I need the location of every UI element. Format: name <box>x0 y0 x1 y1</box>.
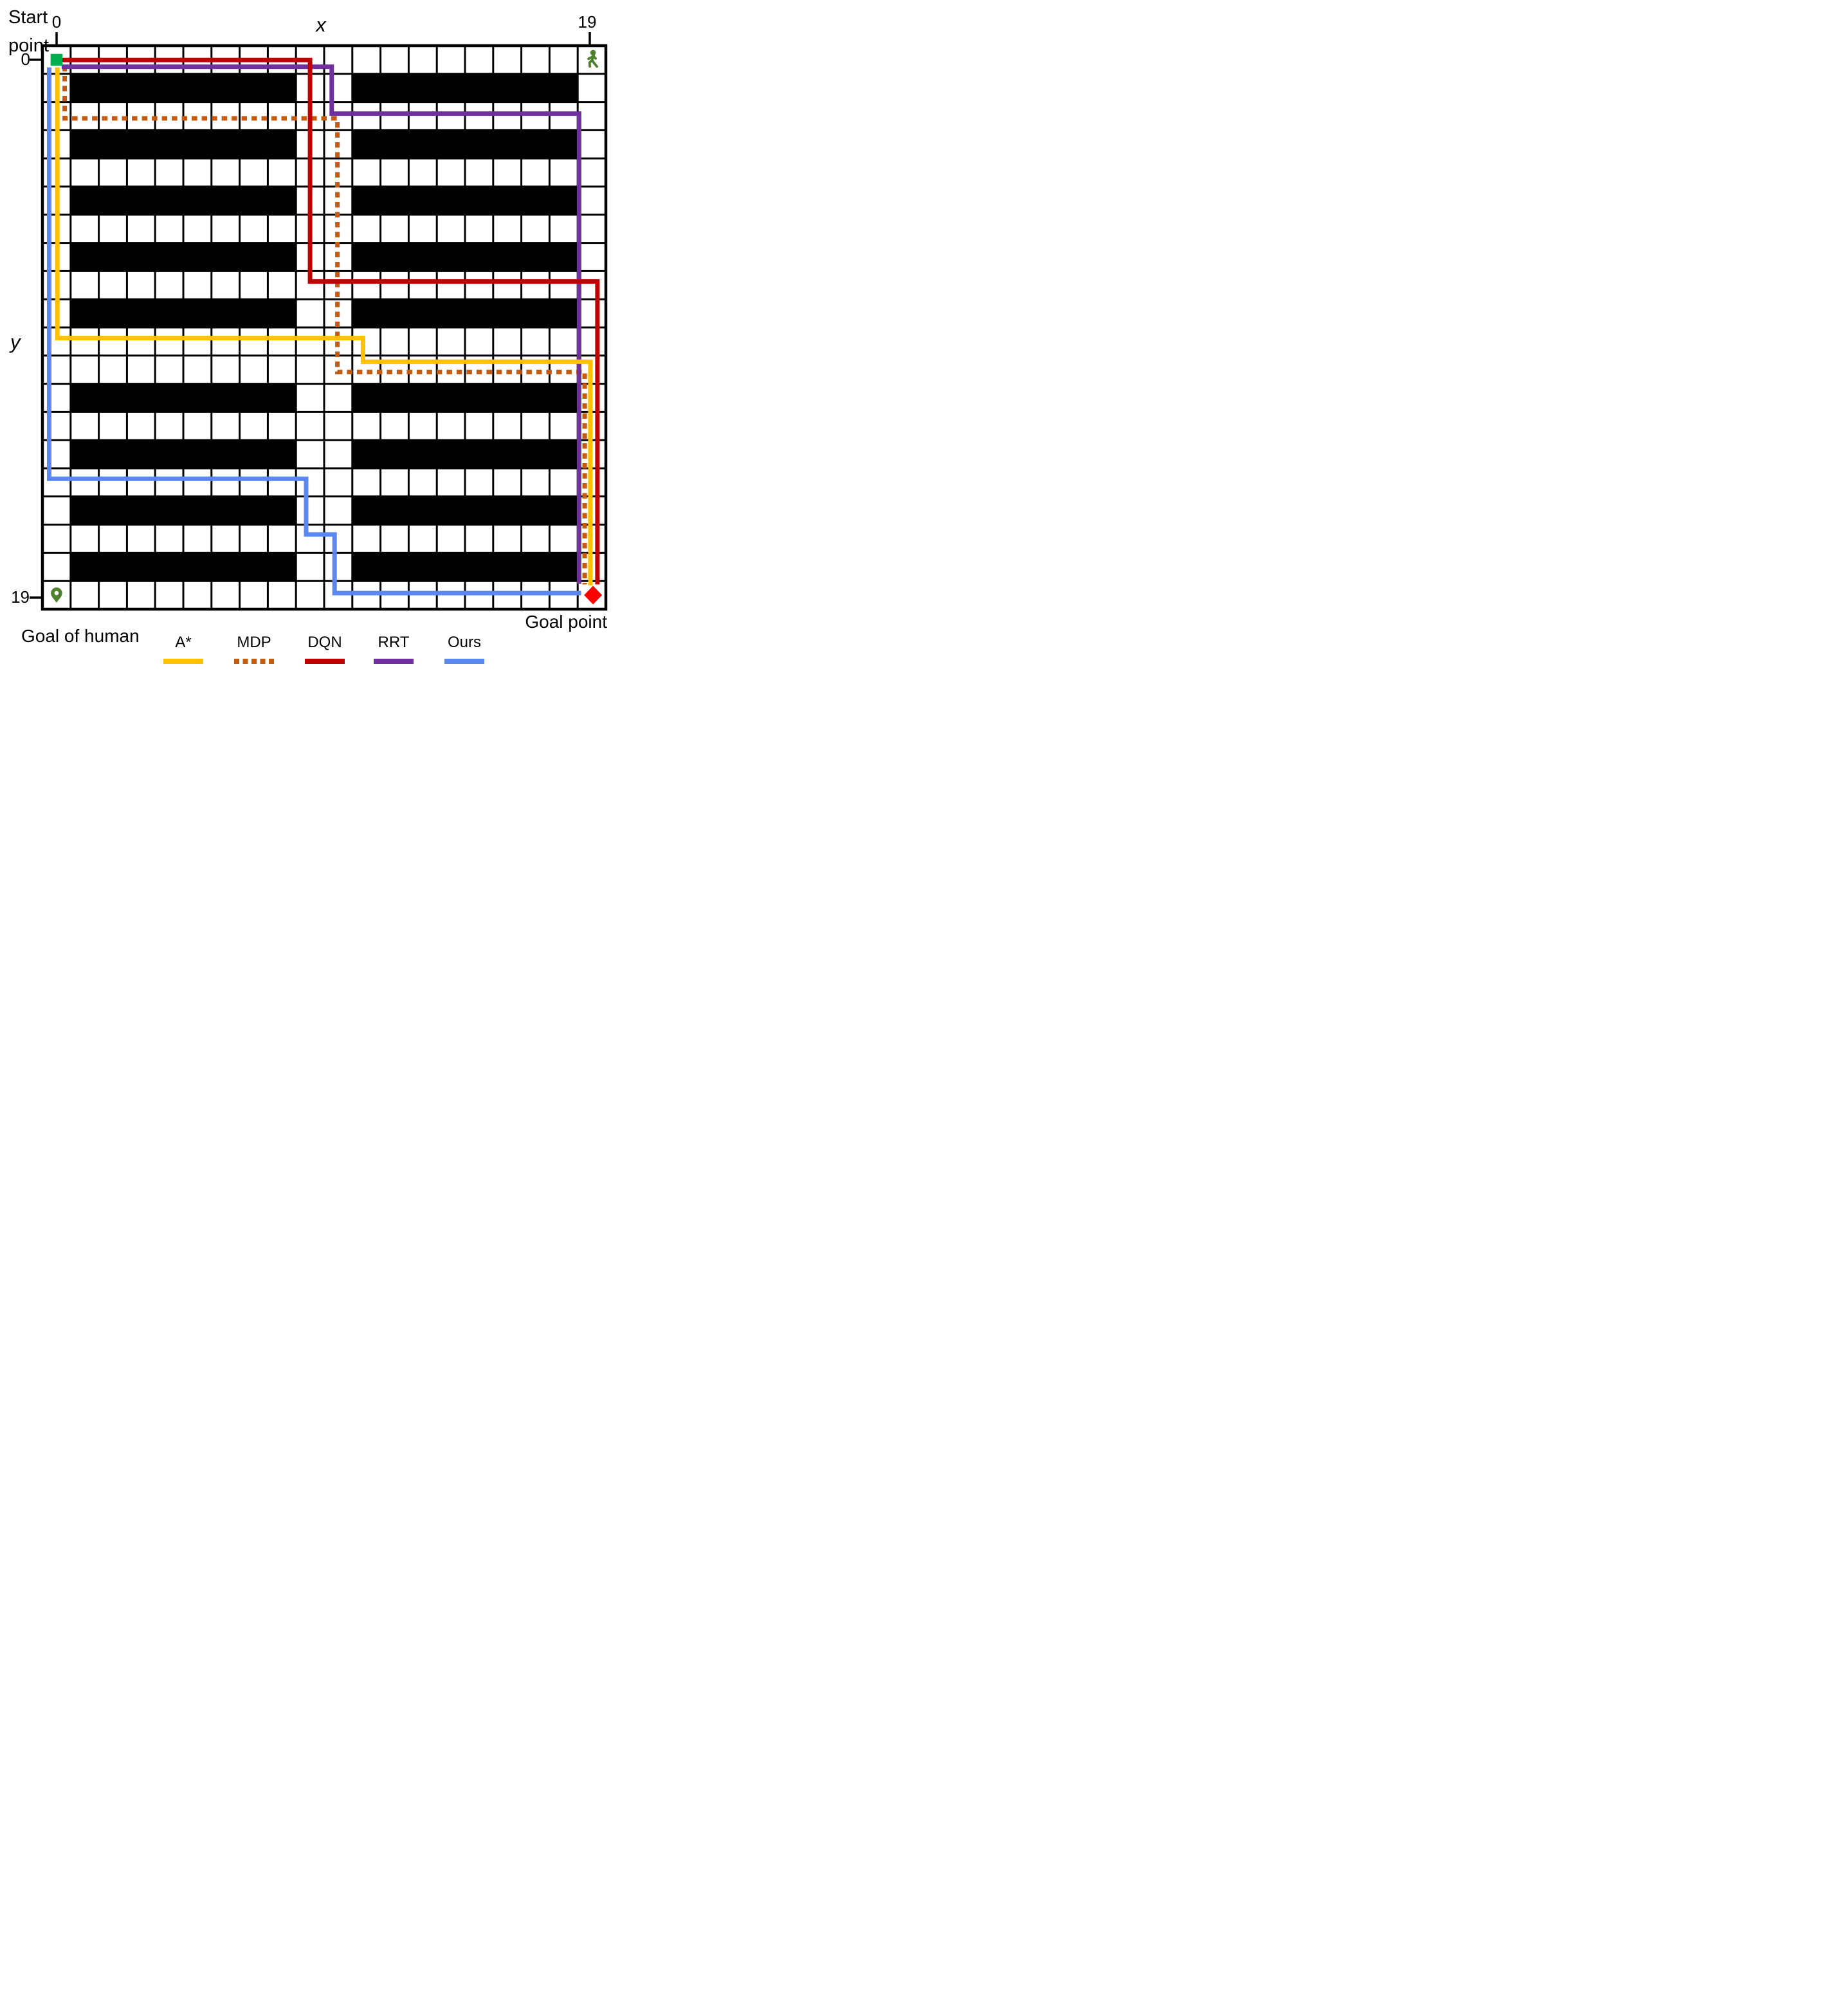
legend-label-mdp: MDP <box>234 634 274 652</box>
legend-item-rrt: RRT <box>374 634 414 664</box>
legend-label-ours: Ours <box>444 634 484 652</box>
ours-line-swatch <box>444 659 484 664</box>
legend-item-mdp: MDP <box>234 634 274 664</box>
x-axis-tick-0: 0 <box>52 12 61 32</box>
path-planning-figure: Start point 0 19 x 0 19 y Goal of human … <box>0 0 611 672</box>
rrt-line-swatch <box>374 659 414 664</box>
y-axis-tick-0: 0 <box>0 50 30 69</box>
goal-point-label: Goal point <box>525 611 607 633</box>
legend-item-astar: A* <box>163 634 203 664</box>
y-axis-tick-19: 19 <box>0 587 30 607</box>
legend: A* MDP DQN RRT Ours <box>0 634 611 672</box>
y-axis-label: y <box>10 330 21 354</box>
mdp-line-swatch <box>234 659 274 664</box>
walking-person-icon <box>588 50 597 67</box>
legend-label-dqn: DQN <box>305 634 345 652</box>
start-square-marker <box>51 54 63 66</box>
grid-maze-canvas <box>0 0 611 672</box>
legend-item-dqn: DQN <box>305 634 345 664</box>
map-pin-icon <box>51 587 62 603</box>
legend-item-ours: Ours <box>444 634 484 664</box>
x-axis-label: x <box>316 13 326 37</box>
astar-line-swatch <box>163 659 203 664</box>
legend-label-rrt: RRT <box>374 634 414 652</box>
goal-diamond-marker <box>584 586 602 605</box>
legend-label-astar: A* <box>163 634 203 652</box>
dqn-line-swatch <box>305 659 345 664</box>
x-axis-tick-19: 19 <box>578 12 597 32</box>
